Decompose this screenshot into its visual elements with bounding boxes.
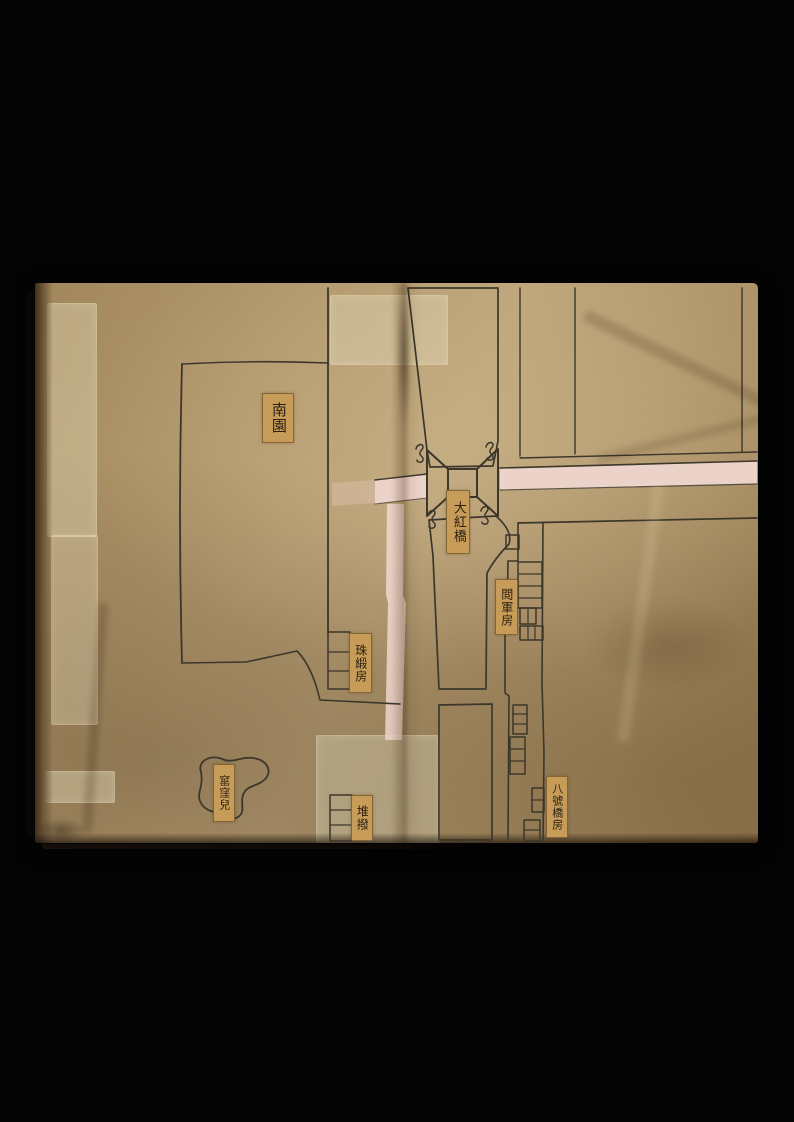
map-page: 南園 大紅橋 閲軍房 珠緞房 堆撥 八號橋房 窰窪兒 — [35, 283, 758, 843]
southeast-enclosure-top — [518, 518, 757, 523]
map-label-south-garden: 南園 — [262, 393, 294, 443]
label-text: 大紅橋 — [451, 501, 465, 543]
bridge-hook-symbol — [481, 507, 488, 525]
northeast-wall-bottom — [520, 452, 757, 458]
building-symbol — [518, 562, 542, 608]
scanned-manuscript-map-photo: 南園 大紅橋 閲軍房 珠緞房 堆撥 八號橋房 窰窪兒 — [0, 0, 794, 1122]
map-label-bridge8-house: 八號橋房 — [546, 776, 568, 838]
roads — [332, 461, 757, 740]
garden-west-wall — [180, 364, 182, 663]
label-text: 南園 — [270, 402, 286, 434]
building-symbol — [520, 626, 543, 640]
canal — [408, 288, 519, 840]
label-text: 閲軍房 — [500, 588, 513, 627]
bridge-west-ramp — [427, 450, 448, 516]
garden-north-wall — [182, 362, 328, 364]
sluice-outlet-symbol — [506, 535, 519, 549]
label-text: 窰窪兒 — [218, 775, 230, 811]
building-symbol — [330, 795, 352, 841]
map-label-sentry-post: 堆撥 — [351, 795, 373, 841]
building-symbol — [328, 632, 350, 689]
boundary-lines — [180, 288, 757, 840]
building-symbol — [532, 788, 544, 812]
bridge-hook-symbol — [416, 445, 423, 463]
building-symbol — [513, 705, 527, 734]
road-vertical — [385, 504, 406, 740]
road-left-faded — [332, 480, 375, 506]
map-label-satin-house: 珠緞房 — [349, 633, 372, 693]
map-label-review-house: 閲軍房 — [495, 579, 518, 635]
building-symbol — [510, 737, 525, 774]
map-drawing — [35, 283, 758, 843]
label-text: 八號橋房 — [551, 783, 563, 831]
canal-lower-reach — [439, 704, 492, 840]
label-text: 堆撥 — [356, 805, 369, 831]
building-symbol — [520, 608, 536, 624]
canal-upper-reach — [408, 288, 498, 467]
road-right — [500, 461, 757, 490]
map-label-dahong-bridge: 大紅橋 — [446, 490, 470, 554]
map-label-kiln-hollow: 窰窪兒 — [213, 764, 235, 822]
label-text: 珠緞房 — [354, 644, 367, 683]
building-symbol — [524, 820, 540, 841]
